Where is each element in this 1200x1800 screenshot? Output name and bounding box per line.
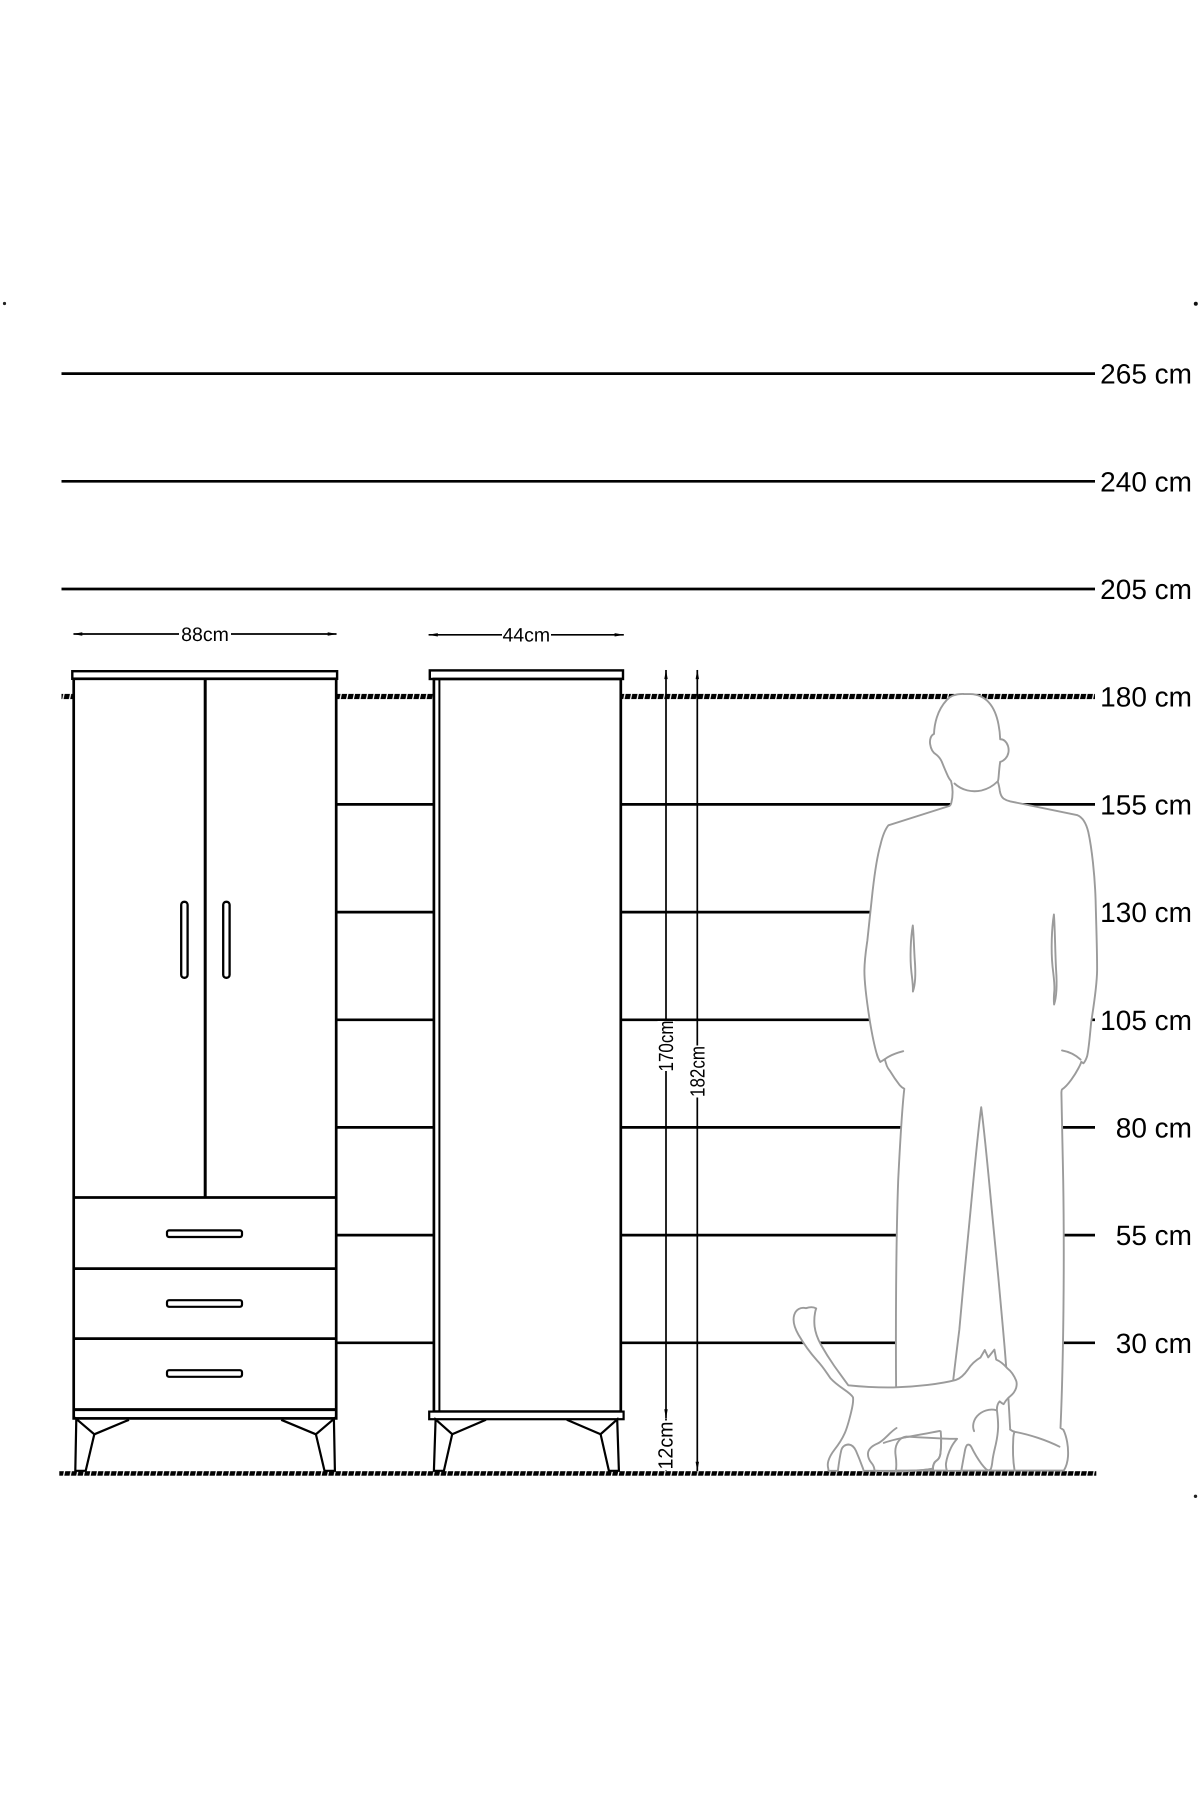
- svg-text:88cm: 88cm: [181, 624, 229, 646]
- svg-text:182cm: 182cm: [686, 1046, 709, 1097]
- svg-text:55 cm: 55 cm: [1116, 1220, 1192, 1251]
- svg-text:30 cm: 30 cm: [1116, 1328, 1192, 1359]
- svg-text:44cm: 44cm: [502, 625, 550, 647]
- svg-text:155 cm: 155 cm: [1100, 789, 1192, 820]
- svg-text:12cm: 12cm: [655, 1422, 678, 1470]
- svg-text:130 cm: 130 cm: [1100, 897, 1192, 928]
- svg-text:80 cm: 80 cm: [1116, 1112, 1192, 1143]
- svg-text:180 cm: 180 cm: [1100, 682, 1192, 713]
- svg-text:105 cm: 105 cm: [1100, 1005, 1192, 1036]
- svg-text:205 cm: 205 cm: [1100, 574, 1192, 605]
- svg-text:240 cm: 240 cm: [1100, 466, 1192, 497]
- svg-text:265 cm: 265 cm: [1100, 359, 1192, 390]
- svg-text:170cm: 170cm: [655, 1021, 678, 1072]
